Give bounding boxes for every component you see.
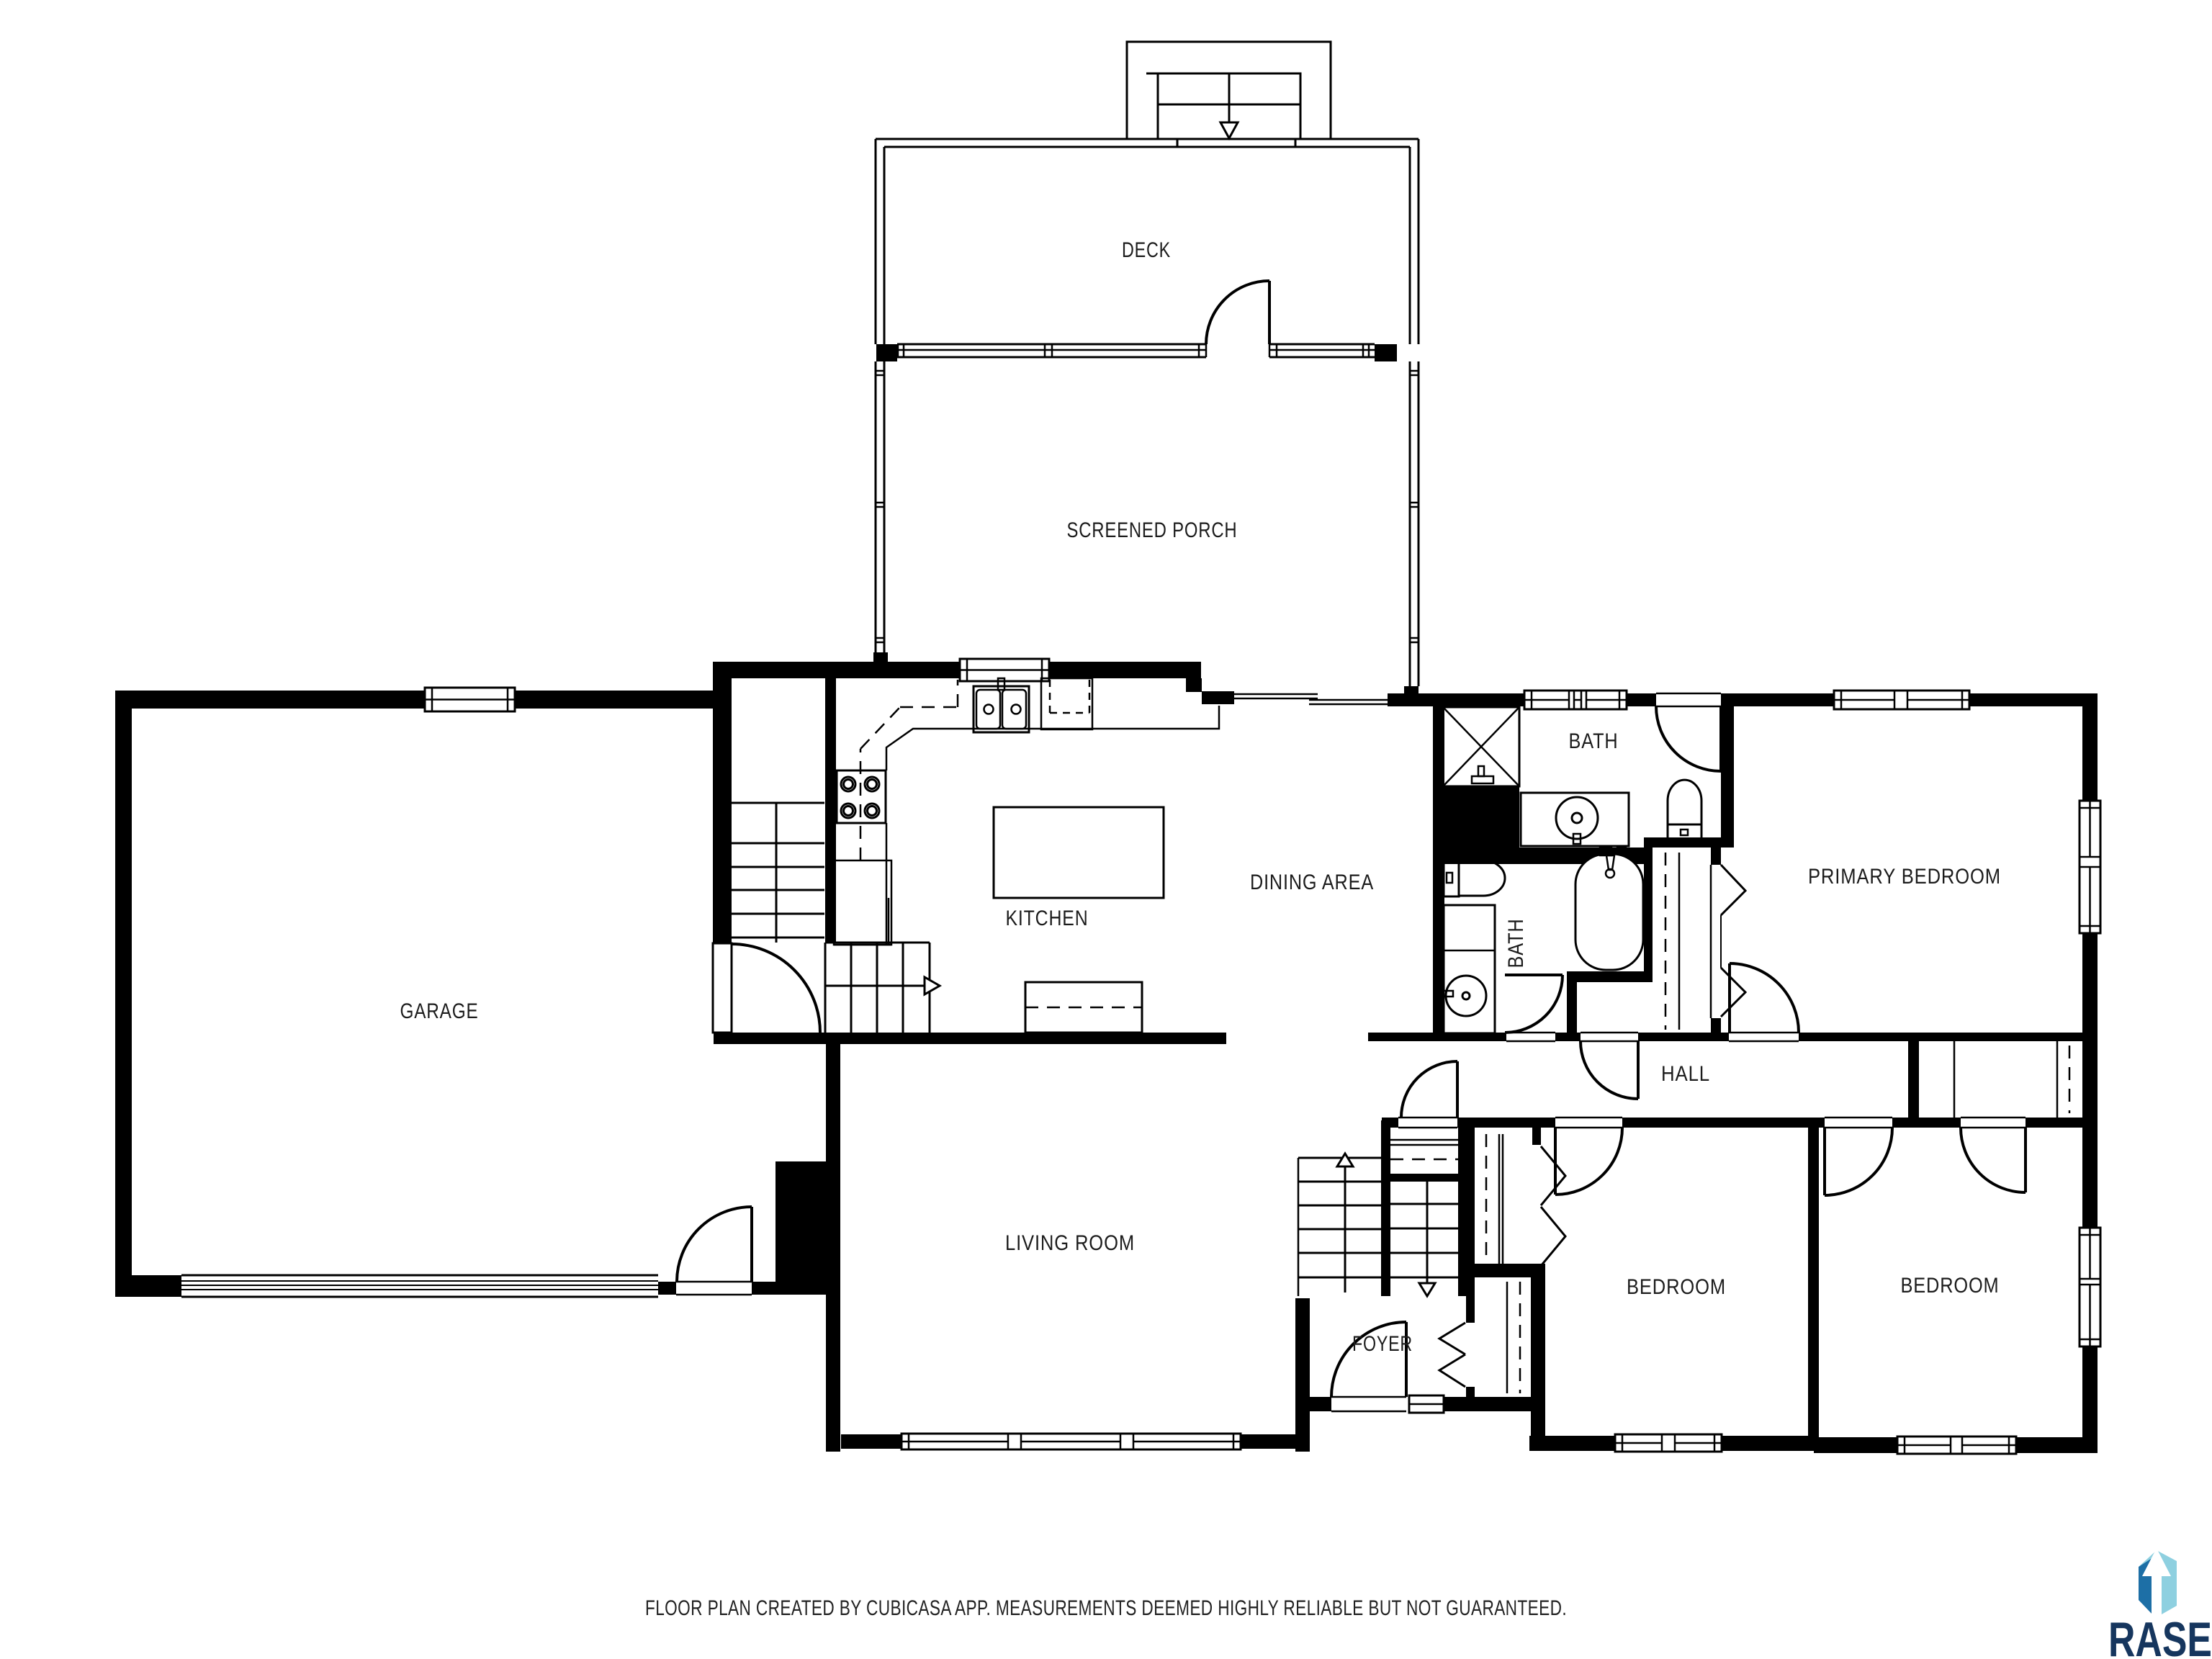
svg-text:DINING AREA: DINING AREA: [1250, 871, 1374, 894]
svg-text:LIVING ROOM: LIVING ROOM: [1005, 1231, 1135, 1255]
svg-text:FLOOR PLAN CREATED BY CUBICASA: FLOOR PLAN CREATED BY CUBICASA APP. MEAS…: [645, 1596, 1567, 1620]
svg-text:SCREENED PORCH: SCREENED PORCH: [1067, 518, 1238, 542]
svg-text:DECK: DECK: [1122, 238, 1171, 262]
svg-text:BEDROOM: BEDROOM: [1627, 1275, 1726, 1299]
svg-text:GARAGE: GARAGE: [400, 999, 479, 1023]
svg-text:KITCHEN: KITCHEN: [1006, 907, 1089, 930]
svg-text:BATH: BATH: [1569, 729, 1619, 753]
svg-text:FOYER: FOYER: [1352, 1332, 1413, 1356]
svg-text:BEDROOM: BEDROOM: [1901, 1274, 2000, 1298]
svg-text:PRIMARY BEDROOM: PRIMARY BEDROOM: [1808, 865, 2001, 889]
svg-text:RASE: RASE: [2108, 1612, 2212, 1659]
svg-text:HALL: HALL: [1661, 1062, 1710, 1086]
svg-text:BATH: BATH: [1504, 919, 1528, 968]
